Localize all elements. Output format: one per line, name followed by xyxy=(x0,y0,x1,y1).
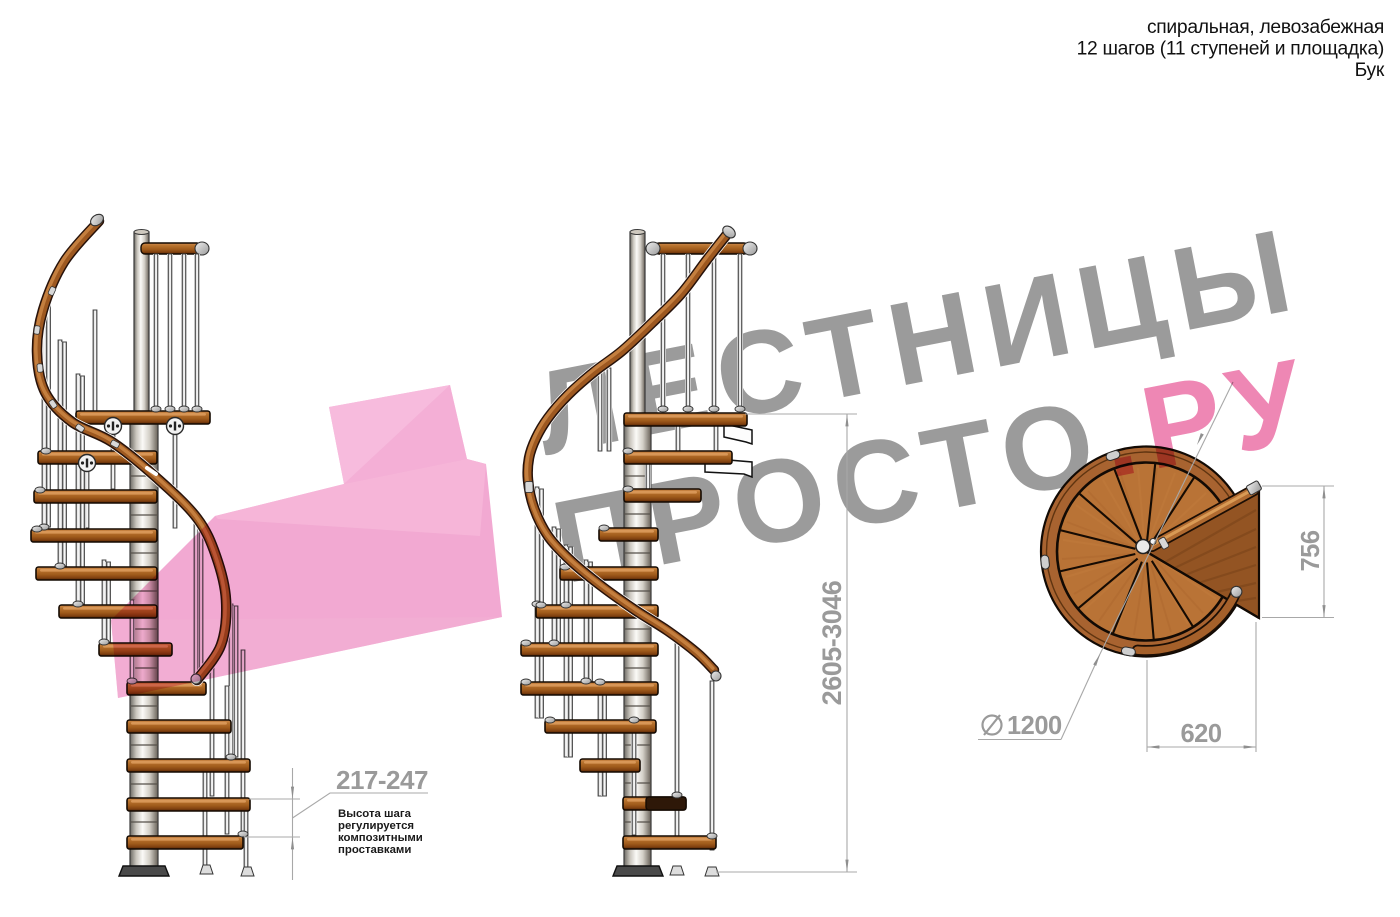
svg-text:регулируется: регулируется xyxy=(338,820,414,832)
svg-text:12 шагов (11 ступеней и площад: 12 шагов (11 ступеней и площадка) xyxy=(1077,39,1384,60)
svg-text:проставками: проставками xyxy=(338,844,411,856)
svg-text:1200: 1200 xyxy=(1007,712,1062,740)
svg-text:217-247: 217-247 xyxy=(336,765,428,795)
svg-text:756: 756 xyxy=(1297,530,1325,571)
svg-text:Бук: Бук xyxy=(1355,60,1385,81)
svg-text:2605-3046: 2605-3046 xyxy=(817,580,847,705)
svg-text:спиральная, левозабежная: спиральная, левозабежная xyxy=(1147,17,1384,38)
svg-text:Высота шага: Высота шага xyxy=(338,808,412,820)
svg-text:620: 620 xyxy=(1180,720,1221,748)
svg-text:композитными: композитными xyxy=(338,832,423,844)
